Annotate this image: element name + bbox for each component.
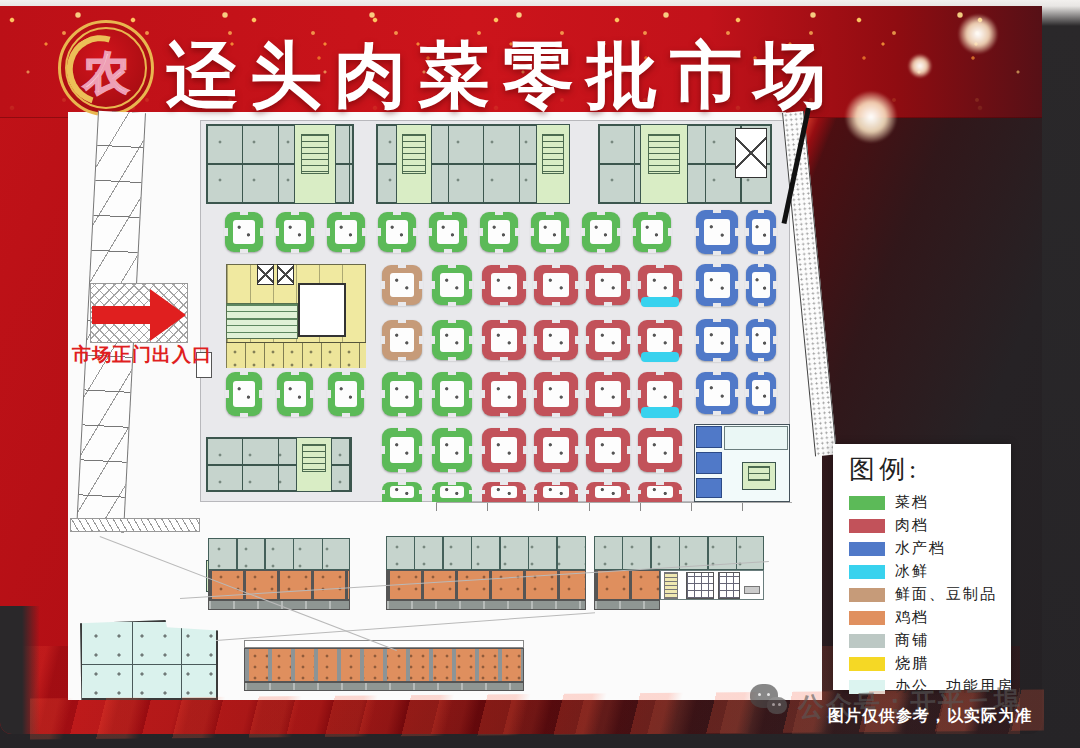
legend-label: 冰鲜	[895, 562, 929, 581]
legend-item-rou: 肉档	[849, 514, 1011, 537]
stall-rou	[534, 265, 578, 305]
stall-shuichan	[696, 372, 738, 414]
stall-gap	[735, 281, 739, 289]
stall-gap	[581, 228, 585, 236]
stall-core	[440, 328, 464, 352]
stall-gap	[362, 228, 366, 236]
legend-swatch-ji	[849, 611, 885, 625]
stall-gap	[637, 490, 641, 494]
stall-gap	[448, 264, 456, 268]
disclaimer-text: 图片仅供参考，以实际为准	[828, 706, 1022, 727]
stall-gap	[604, 302, 613, 306]
stall-core	[440, 486, 464, 498]
stall-gap	[617, 228, 621, 236]
stall-core	[437, 220, 460, 244]
stall-gap	[495, 249, 503, 253]
stall-gap	[758, 263, 764, 267]
stall-gap	[656, 319, 665, 323]
stall-gap	[637, 336, 641, 344]
legend-label: 鸡档	[895, 608, 929, 627]
stall-cai	[429, 212, 467, 252]
stall-gap	[745, 389, 749, 397]
legend-label: 肉档	[895, 516, 929, 535]
stall-core	[543, 381, 569, 407]
stall-core	[390, 328, 414, 352]
stall-shuichan	[746, 319, 776, 361]
stall-gap	[240, 413, 247, 417]
stall-core	[647, 328, 673, 352]
stall-gap	[398, 319, 406, 323]
stall-rou	[534, 482, 578, 502]
stall-gap	[585, 281, 589, 289]
stall-gap	[713, 358, 721, 362]
stall-cai	[382, 482, 422, 502]
stall-gap	[735, 228, 739, 237]
stall-core	[590, 220, 613, 244]
stall-gap	[469, 336, 473, 344]
stall-gap	[479, 228, 483, 236]
stall-gap	[533, 336, 537, 344]
stall-core	[539, 220, 562, 244]
stall-core	[752, 272, 770, 297]
legend-title: 图例:	[849, 452, 1011, 487]
stall-gap	[713, 303, 721, 307]
stall-core	[543, 437, 569, 463]
stall-gap	[481, 390, 485, 399]
stall-core	[595, 437, 621, 463]
stall-gap	[679, 336, 683, 344]
stall-rou	[482, 320, 526, 360]
stall-core	[647, 437, 673, 463]
stall-core	[641, 220, 664, 244]
stall-gap	[398, 427, 406, 431]
stall-gap	[713, 318, 721, 322]
stall-core	[440, 437, 464, 463]
stall-cai	[582, 212, 620, 252]
stall-gap	[260, 228, 264, 236]
stall-cai	[277, 372, 313, 416]
ice-fresh-counter	[641, 297, 680, 307]
stall-gap	[745, 336, 749, 344]
stall-gap	[695, 389, 699, 397]
stall-core	[390, 486, 414, 498]
stall-gap	[585, 490, 589, 494]
stall-gap	[481, 490, 485, 494]
stall-cai	[480, 212, 518, 252]
stall-gap	[444, 249, 452, 253]
stall-gap	[342, 249, 350, 253]
ice-fresh-counter	[641, 407, 680, 418]
stall-gap	[448, 371, 456, 375]
stall-gap	[342, 413, 349, 417]
stall-gap	[419, 336, 423, 344]
stall-core	[491, 328, 517, 352]
stall-gap	[758, 209, 764, 213]
screenshot-root: { "title": { "text": "迳头肉菜零批市场", "logo_c…	[0, 0, 1080, 748]
stall-gap	[627, 281, 631, 289]
stall-gap	[585, 336, 589, 344]
stall-gap	[575, 281, 579, 289]
stall-gap	[469, 390, 473, 399]
stall-shuichan	[746, 210, 776, 254]
stall-gap	[291, 249, 299, 253]
stall-gap	[546, 211, 554, 215]
stall-gap	[745, 228, 749, 237]
stall-gap	[310, 390, 314, 399]
stall-gap	[627, 490, 631, 494]
stall-gap	[481, 446, 485, 455]
stall-core	[233, 381, 255, 407]
stall-gap	[398, 371, 406, 375]
stall-shuichan	[746, 264, 776, 306]
stall-gap	[758, 251, 764, 255]
legend-swatch-shangpu	[849, 634, 885, 648]
stall-gap	[500, 427, 509, 431]
stall-gap	[381, 446, 385, 455]
stall-gap	[481, 336, 485, 344]
stall-gap	[632, 228, 636, 236]
stall-cai	[432, 265, 472, 305]
stall-shuichan	[696, 264, 738, 306]
stall-gap	[575, 446, 579, 455]
stall-gap	[381, 281, 385, 289]
stall-gap	[695, 228, 699, 237]
stall-gap	[291, 371, 298, 375]
stall-cai	[432, 428, 472, 472]
stall-gap	[585, 446, 589, 455]
stall-gap	[419, 446, 423, 455]
stall-gap	[627, 390, 631, 399]
stall-cai	[226, 372, 262, 416]
legend-label: 烧腊	[895, 654, 929, 673]
stall-rou	[534, 372, 578, 416]
wechat-icon	[750, 682, 796, 724]
stall-gap	[656, 469, 665, 473]
stall-cai	[432, 372, 472, 416]
legend-label: 水产档	[895, 539, 946, 558]
stall-cai	[432, 482, 472, 502]
stall-gap	[604, 264, 613, 268]
stall-gap	[419, 490, 423, 494]
stall-gap	[546, 249, 554, 253]
stall-gap	[695, 336, 699, 344]
stall-core	[543, 273, 569, 297]
stall-gap	[604, 469, 613, 473]
stall-gap	[500, 481, 509, 485]
stall-gap	[713, 251, 721, 255]
stall-gap	[342, 371, 349, 375]
stall-core	[440, 381, 464, 407]
stall-core	[595, 273, 621, 297]
icon-eye	[767, 693, 770, 696]
stall-gap	[413, 228, 417, 236]
stall-gap	[240, 249, 248, 253]
stall-gap	[735, 336, 739, 344]
stall-core	[491, 486, 517, 498]
stall-rou	[482, 482, 526, 502]
stall-gap	[464, 228, 468, 236]
stall-gap	[679, 390, 683, 399]
stall-gap	[533, 390, 537, 399]
stall-gap	[500, 264, 509, 268]
stall-gap	[530, 228, 534, 236]
stall-gap	[713, 371, 721, 375]
stall-rou	[482, 265, 526, 305]
stall-core	[647, 273, 673, 297]
legend-swatch-cai	[849, 496, 885, 510]
stall-gap	[533, 490, 537, 494]
stall-gap	[627, 336, 631, 344]
stall-gap	[523, 490, 527, 494]
stall-gap	[758, 318, 764, 322]
stall-gap	[648, 211, 656, 215]
stall-gap	[585, 390, 589, 399]
legend-item-ji: 鸡档	[849, 606, 1011, 629]
stall-rou	[638, 372, 682, 416]
stall-gap	[448, 413, 456, 417]
stall-gap	[275, 228, 279, 236]
stall-gap	[500, 357, 509, 361]
legend-item-shuichan: 水产档	[849, 537, 1011, 560]
stall-gap	[381, 490, 385, 494]
stall-gap	[500, 319, 509, 323]
stall-core	[647, 381, 673, 407]
stall-gap	[637, 390, 641, 399]
stall-gap	[552, 469, 561, 473]
legend-box: 图例: 菜档肉档水产档冰鲜鲜面、豆制品鸡档商铺烧腊办公、功能用房	[833, 444, 1011, 690]
stall-gap	[575, 390, 579, 399]
legend-label: 鲜面、豆制品	[895, 585, 997, 604]
legend-item-shangpu: 商铺	[849, 629, 1011, 652]
stall-gap	[291, 413, 298, 417]
stall-gap	[695, 281, 699, 289]
stall-gap	[758, 303, 764, 307]
stall-rou	[638, 320, 682, 360]
stall-gap	[431, 446, 435, 455]
stall-gap	[469, 446, 473, 455]
stall-gap	[276, 390, 280, 399]
stall-gap	[481, 281, 485, 289]
stall-gap	[523, 336, 527, 344]
stall-core	[491, 273, 517, 297]
stall-core	[233, 220, 256, 244]
stall-rou	[534, 320, 578, 360]
stall-core	[752, 327, 770, 352]
stall-gap	[326, 228, 330, 236]
stall-cai	[378, 212, 416, 252]
stall-gap	[758, 371, 764, 375]
stall-rou	[586, 482, 630, 502]
stall-shuichan	[746, 372, 776, 414]
stall-gap	[377, 228, 381, 236]
stall-gap	[311, 228, 315, 236]
stall-gap	[758, 411, 764, 415]
stall-rou	[586, 428, 630, 472]
stall-rou	[638, 482, 682, 502]
stall-cai	[382, 372, 422, 416]
stall-gap	[240, 211, 248, 215]
stall-cai	[276, 212, 314, 252]
legend-swatch-bingxian	[849, 565, 885, 579]
stall-gap	[500, 302, 509, 306]
stall-gap	[552, 319, 561, 323]
stall-gap	[431, 490, 435, 494]
legend-item-shaola: 烧腊	[849, 652, 1011, 675]
stall-core	[284, 381, 306, 407]
stall-core	[335, 381, 357, 407]
stall-gap	[735, 389, 739, 397]
stall-rou	[534, 428, 578, 472]
stall-gap	[656, 427, 665, 431]
stall-gap	[552, 357, 561, 361]
stall-gap	[773, 281, 777, 289]
stall-gap	[773, 228, 777, 237]
stall-gap	[552, 264, 561, 268]
stall-gap	[240, 371, 247, 375]
stall-core	[543, 486, 569, 498]
stall-gap	[495, 211, 503, 215]
stall-gap	[381, 336, 385, 344]
stall-cai	[225, 212, 263, 252]
stall-gap	[604, 357, 613, 361]
stall-rou	[586, 320, 630, 360]
stall-gap	[523, 390, 527, 399]
stall-shuichan	[696, 319, 738, 361]
stall-gap	[448, 469, 456, 473]
ice-fresh-counter	[641, 352, 680, 362]
stall-gap	[419, 390, 423, 399]
stall-core	[595, 381, 621, 407]
legend-item-cai: 菜档	[849, 491, 1011, 514]
stall-gap	[398, 413, 406, 417]
stall-gap	[552, 413, 561, 417]
stall-cai	[531, 212, 569, 252]
stall-gap	[224, 228, 228, 236]
stall-cai	[432, 320, 472, 360]
stall-gap	[597, 249, 605, 253]
stall-gap	[500, 413, 509, 417]
stall-rou	[586, 265, 630, 305]
stall-gap	[552, 371, 561, 375]
stall-gap	[552, 302, 561, 306]
stall-gap	[566, 228, 570, 236]
stall-core	[647, 486, 673, 498]
stall-gap	[656, 264, 665, 268]
stall-core	[440, 273, 464, 297]
stall-gap	[381, 390, 385, 399]
stall-rou	[586, 372, 630, 416]
stall-gap	[393, 249, 401, 253]
stall-gap	[637, 281, 641, 289]
stall-core	[704, 272, 729, 297]
stall-cai	[382, 428, 422, 472]
stall-gap	[515, 228, 519, 236]
stall-core	[704, 219, 729, 245]
stall-gap	[444, 211, 452, 215]
stall-gap	[448, 481, 456, 485]
stall-rou	[482, 428, 526, 472]
legend-item-bingxian: 冰鲜	[849, 560, 1011, 583]
stall-xianmian	[382, 265, 422, 305]
stall-core	[284, 220, 307, 244]
stall-gap	[428, 228, 432, 236]
stall-gap	[398, 357, 406, 361]
stall-gap	[773, 389, 777, 397]
stall-gap	[500, 371, 509, 375]
stall-cai	[328, 372, 364, 416]
stall-gap	[419, 281, 423, 289]
chat-bubble-icon	[767, 697, 787, 714]
stall-gap	[758, 358, 764, 362]
stall-core	[491, 437, 517, 463]
icon-eye	[758, 693, 761, 696]
stall-core	[595, 328, 621, 352]
stall-gap	[431, 281, 435, 289]
stall-gap	[533, 446, 537, 455]
stall-core	[386, 220, 409, 244]
stall-gap	[679, 490, 683, 494]
stall-core	[752, 380, 770, 405]
stall-gap	[627, 446, 631, 455]
stall-gap	[500, 469, 509, 473]
stall-gap	[225, 390, 229, 399]
stall-xianmian	[382, 320, 422, 360]
stall-gap	[431, 336, 435, 344]
legend-swatch-shaola	[849, 657, 885, 671]
stall-gap	[604, 413, 613, 417]
stall-gap	[448, 357, 456, 361]
stall-gap	[656, 481, 665, 485]
stall-gap	[469, 281, 473, 289]
stall-gap	[523, 446, 527, 455]
stall-gap	[679, 281, 683, 289]
stall-gap	[398, 302, 406, 306]
stall-gap	[398, 264, 406, 268]
stall-rou	[638, 265, 682, 305]
stall-gap	[448, 427, 456, 431]
legend-rows: 菜档肉档水产档冰鲜鲜面、豆制品鸡档商铺烧腊办公、功能用房	[849, 491, 1011, 698]
stall-gap	[604, 371, 613, 375]
stall-gap	[523, 281, 527, 289]
legend-swatch-xianmian	[849, 588, 885, 602]
stall-rou	[638, 428, 682, 472]
stall-gap	[713, 263, 721, 267]
stall-gap	[604, 427, 613, 431]
stall-gap	[604, 481, 613, 485]
stall-gap	[637, 446, 641, 455]
icon-eye	[778, 703, 781, 706]
stall-gap	[679, 446, 683, 455]
icon-eye	[772, 703, 775, 706]
stall-gap	[533, 281, 537, 289]
stall-gap	[469, 490, 473, 494]
stall-core	[704, 327, 729, 352]
stall-gap	[656, 371, 665, 375]
stall-shuichan	[696, 210, 738, 254]
stall-core	[488, 220, 511, 244]
stall-gap	[398, 469, 406, 473]
stall-gap	[431, 390, 435, 399]
stall-gap	[393, 211, 401, 215]
legend-label: 菜档	[895, 493, 929, 512]
stall-gap	[648, 249, 656, 253]
stall-gap	[448, 319, 456, 323]
stall-gap	[575, 490, 579, 494]
stall-gap	[713, 209, 721, 213]
stall-gap	[552, 481, 561, 485]
stall-core	[752, 219, 770, 245]
stall-gap	[398, 481, 406, 485]
